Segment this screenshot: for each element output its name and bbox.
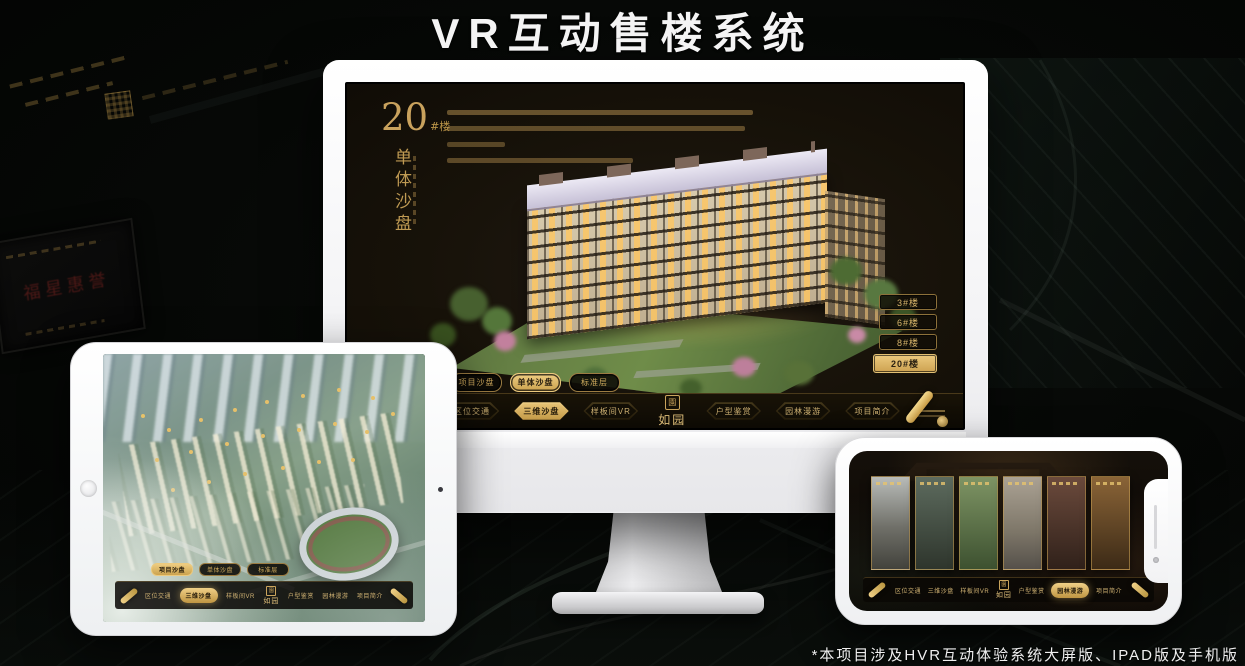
nav-item-project-intro[interactable]: 项目简介 xyxy=(842,401,904,421)
gallery-card[interactable] xyxy=(1047,476,1086,570)
block-subtitle-vertical: 单体沙盘 xyxy=(389,148,414,268)
subtitle-english-deco xyxy=(413,154,416,224)
floor-button-3[interactable]: 3#楼 xyxy=(879,294,937,310)
flower-bush xyxy=(732,357,756,377)
ipad-home-button[interactable] xyxy=(80,480,97,497)
scroll-rod xyxy=(904,389,934,424)
phone-notch xyxy=(1144,479,1168,583)
phone-speaker xyxy=(1154,505,1157,549)
ipad-device: 项目沙盘 单体沙盘 标准层 区位交通 三维沙盘 样板间VR 園 如园 户型鉴赏 … xyxy=(70,342,457,636)
nav-item-location-traffic[interactable]: 区位交通 xyxy=(895,586,921,595)
intro-text-line xyxy=(447,126,745,131)
brand-logo: 園 如园 xyxy=(649,395,695,428)
block-title: 20#楼 xyxy=(381,98,450,138)
tab-project-sandbox[interactable]: 项目沙盘 xyxy=(451,373,502,392)
background-qr-mark xyxy=(104,90,133,119)
ipad-screen: 项目沙盘 单体沙盘 标准层 区位交通 三维沙盘 样板间VR 園 如园 户型鉴赏 … xyxy=(103,354,425,622)
nav-item-3d-sandbox[interactable]: 三维沙盘 xyxy=(928,586,954,595)
flower-bush xyxy=(848,327,866,343)
card-caption xyxy=(876,482,902,485)
nav-item-model-room-vr[interactable]: 样板间VR xyxy=(580,401,642,421)
phone-nav-bar: 区位交通 三维沙盘 样板间VR 園 如园 户型鉴赏 园林漫游 项目简介 xyxy=(863,577,1154,602)
scene-gallery xyxy=(871,476,1130,570)
floor-button-20[interactable]: 20#楼 xyxy=(873,354,937,373)
tab-project-sandbox[interactable]: 项目沙盘 xyxy=(151,563,193,576)
scroll-end-icon xyxy=(119,587,138,604)
tab-single-sandbox[interactable]: 单体沙盘 xyxy=(199,563,241,576)
brand-name: 如园 xyxy=(996,590,1012,600)
brand-seal-icon: 園 xyxy=(665,395,680,410)
nav-item-garden-roam[interactable]: 园林漫游 xyxy=(1051,583,1089,598)
nav-item-model-room-vr[interactable]: 样板间VR xyxy=(226,591,255,600)
phone-device: 区位交通 三维沙盘 样板间VR 園 如园 户型鉴赏 园林漫游 项目简介 xyxy=(835,437,1182,625)
brand-seal-icon: 園 xyxy=(266,586,276,596)
nav-item-unit-plans[interactable]: 户型鉴赏 xyxy=(1019,586,1045,595)
brand-logo: 園 如园 xyxy=(996,580,1012,600)
gallery-card[interactable] xyxy=(1091,476,1130,570)
main-nav-bar: 区位交通 三维沙盘 样板间VR 園 如园 xyxy=(427,393,963,428)
building-model-3d[interactable] xyxy=(432,139,932,409)
ipad-nav-bar: 区位交通 三维沙盘 样板间VR 園 如园 户型鉴赏 园林漫游 项目简介 xyxy=(115,581,413,609)
monitor-stand-neck xyxy=(592,512,726,602)
card-caption xyxy=(920,482,946,485)
plaque-small-text xyxy=(6,240,101,260)
nav-item-garden-roam[interactable]: 园林漫游 xyxy=(322,591,348,600)
phone-front-camera xyxy=(1153,557,1159,563)
floor-selector: 3#楼 6#楼 8#楼 20#楼 xyxy=(873,294,937,373)
nav-item-model-room-vr[interactable]: 样板间VR xyxy=(960,586,989,595)
scroll-brush-icon[interactable] xyxy=(911,396,951,426)
brand-seal-icon: 園 xyxy=(999,580,1009,590)
ipad-camera xyxy=(438,487,443,492)
scroll-end-icon xyxy=(1130,581,1149,598)
brand-name: 如园 xyxy=(649,411,695,428)
nav-item-project-intro[interactable]: 项目简介 xyxy=(357,591,383,600)
gallery-card[interactable] xyxy=(915,476,954,570)
card-caption xyxy=(1096,482,1122,485)
nav-item-3d-sandbox[interactable]: 三维沙盘 xyxy=(180,588,218,603)
tree xyxy=(784,361,814,385)
monitor-stand-base xyxy=(552,592,764,614)
block-number: 20 xyxy=(381,96,428,139)
tree xyxy=(830,257,862,285)
floor-button-6[interactable]: 6#楼 xyxy=(879,314,937,330)
gallery-card[interactable] xyxy=(1003,476,1042,570)
card-caption xyxy=(1052,482,1078,485)
nav-item-location-traffic[interactable]: 区位交通 xyxy=(145,591,171,600)
floor-button-8[interactable]: 8#楼 xyxy=(879,334,937,350)
card-caption xyxy=(964,482,990,485)
gallery-card[interactable] xyxy=(871,476,910,570)
nav-item-unit-plans[interactable]: 户型鉴赏 xyxy=(288,591,314,600)
tab-standard-floor[interactable]: 标准层 xyxy=(247,563,289,576)
poster-title: VR互动售楼系统 xyxy=(0,2,1245,58)
intro-text-line xyxy=(447,110,753,115)
plaque-seal-text: 福星惠誉 xyxy=(0,260,138,310)
plaque-small-text xyxy=(25,319,104,336)
brand-name: 如园 xyxy=(263,596,279,606)
nav-item-project-intro[interactable]: 项目简介 xyxy=(1096,586,1122,595)
flower-bush xyxy=(494,331,516,351)
scroll-roll-end xyxy=(937,416,948,427)
nav-item-3d-sandbox[interactable]: 三维沙盘 xyxy=(510,401,572,421)
tab-single-sandbox[interactable]: 单体沙盘 xyxy=(510,373,561,392)
card-caption xyxy=(1008,482,1034,485)
sandbox-sub-tabs: 项目沙盘 单体沙盘 标准层 xyxy=(451,373,620,392)
nav-item-garden-roam[interactable]: 园林漫游 xyxy=(772,401,834,421)
phone-screen: 区位交通 三维沙盘 样板间VR 園 如园 户型鉴赏 园林漫游 项目简介 xyxy=(849,451,1168,611)
brand-logo: 園 如园 xyxy=(263,586,279,606)
scroll-end-icon xyxy=(389,587,408,604)
ipad-sandbox-sub-tabs: 项目沙盘 单体沙盘 标准层 xyxy=(151,563,289,576)
tab-standard-floor[interactable]: 标准层 xyxy=(569,373,620,392)
footnote-text: *本项目涉及HVR互动体验系统大屏版、IPAD版及手机版 xyxy=(812,644,1239,665)
nav-item-unit-plans[interactable]: 户型鉴赏 xyxy=(703,401,765,421)
poster-stage: 福星惠誉 VR互动售楼系统 20#楼 单体沙盘 xyxy=(0,0,1245,666)
gallery-card[interactable] xyxy=(959,476,998,570)
scroll-end-icon xyxy=(867,581,886,598)
